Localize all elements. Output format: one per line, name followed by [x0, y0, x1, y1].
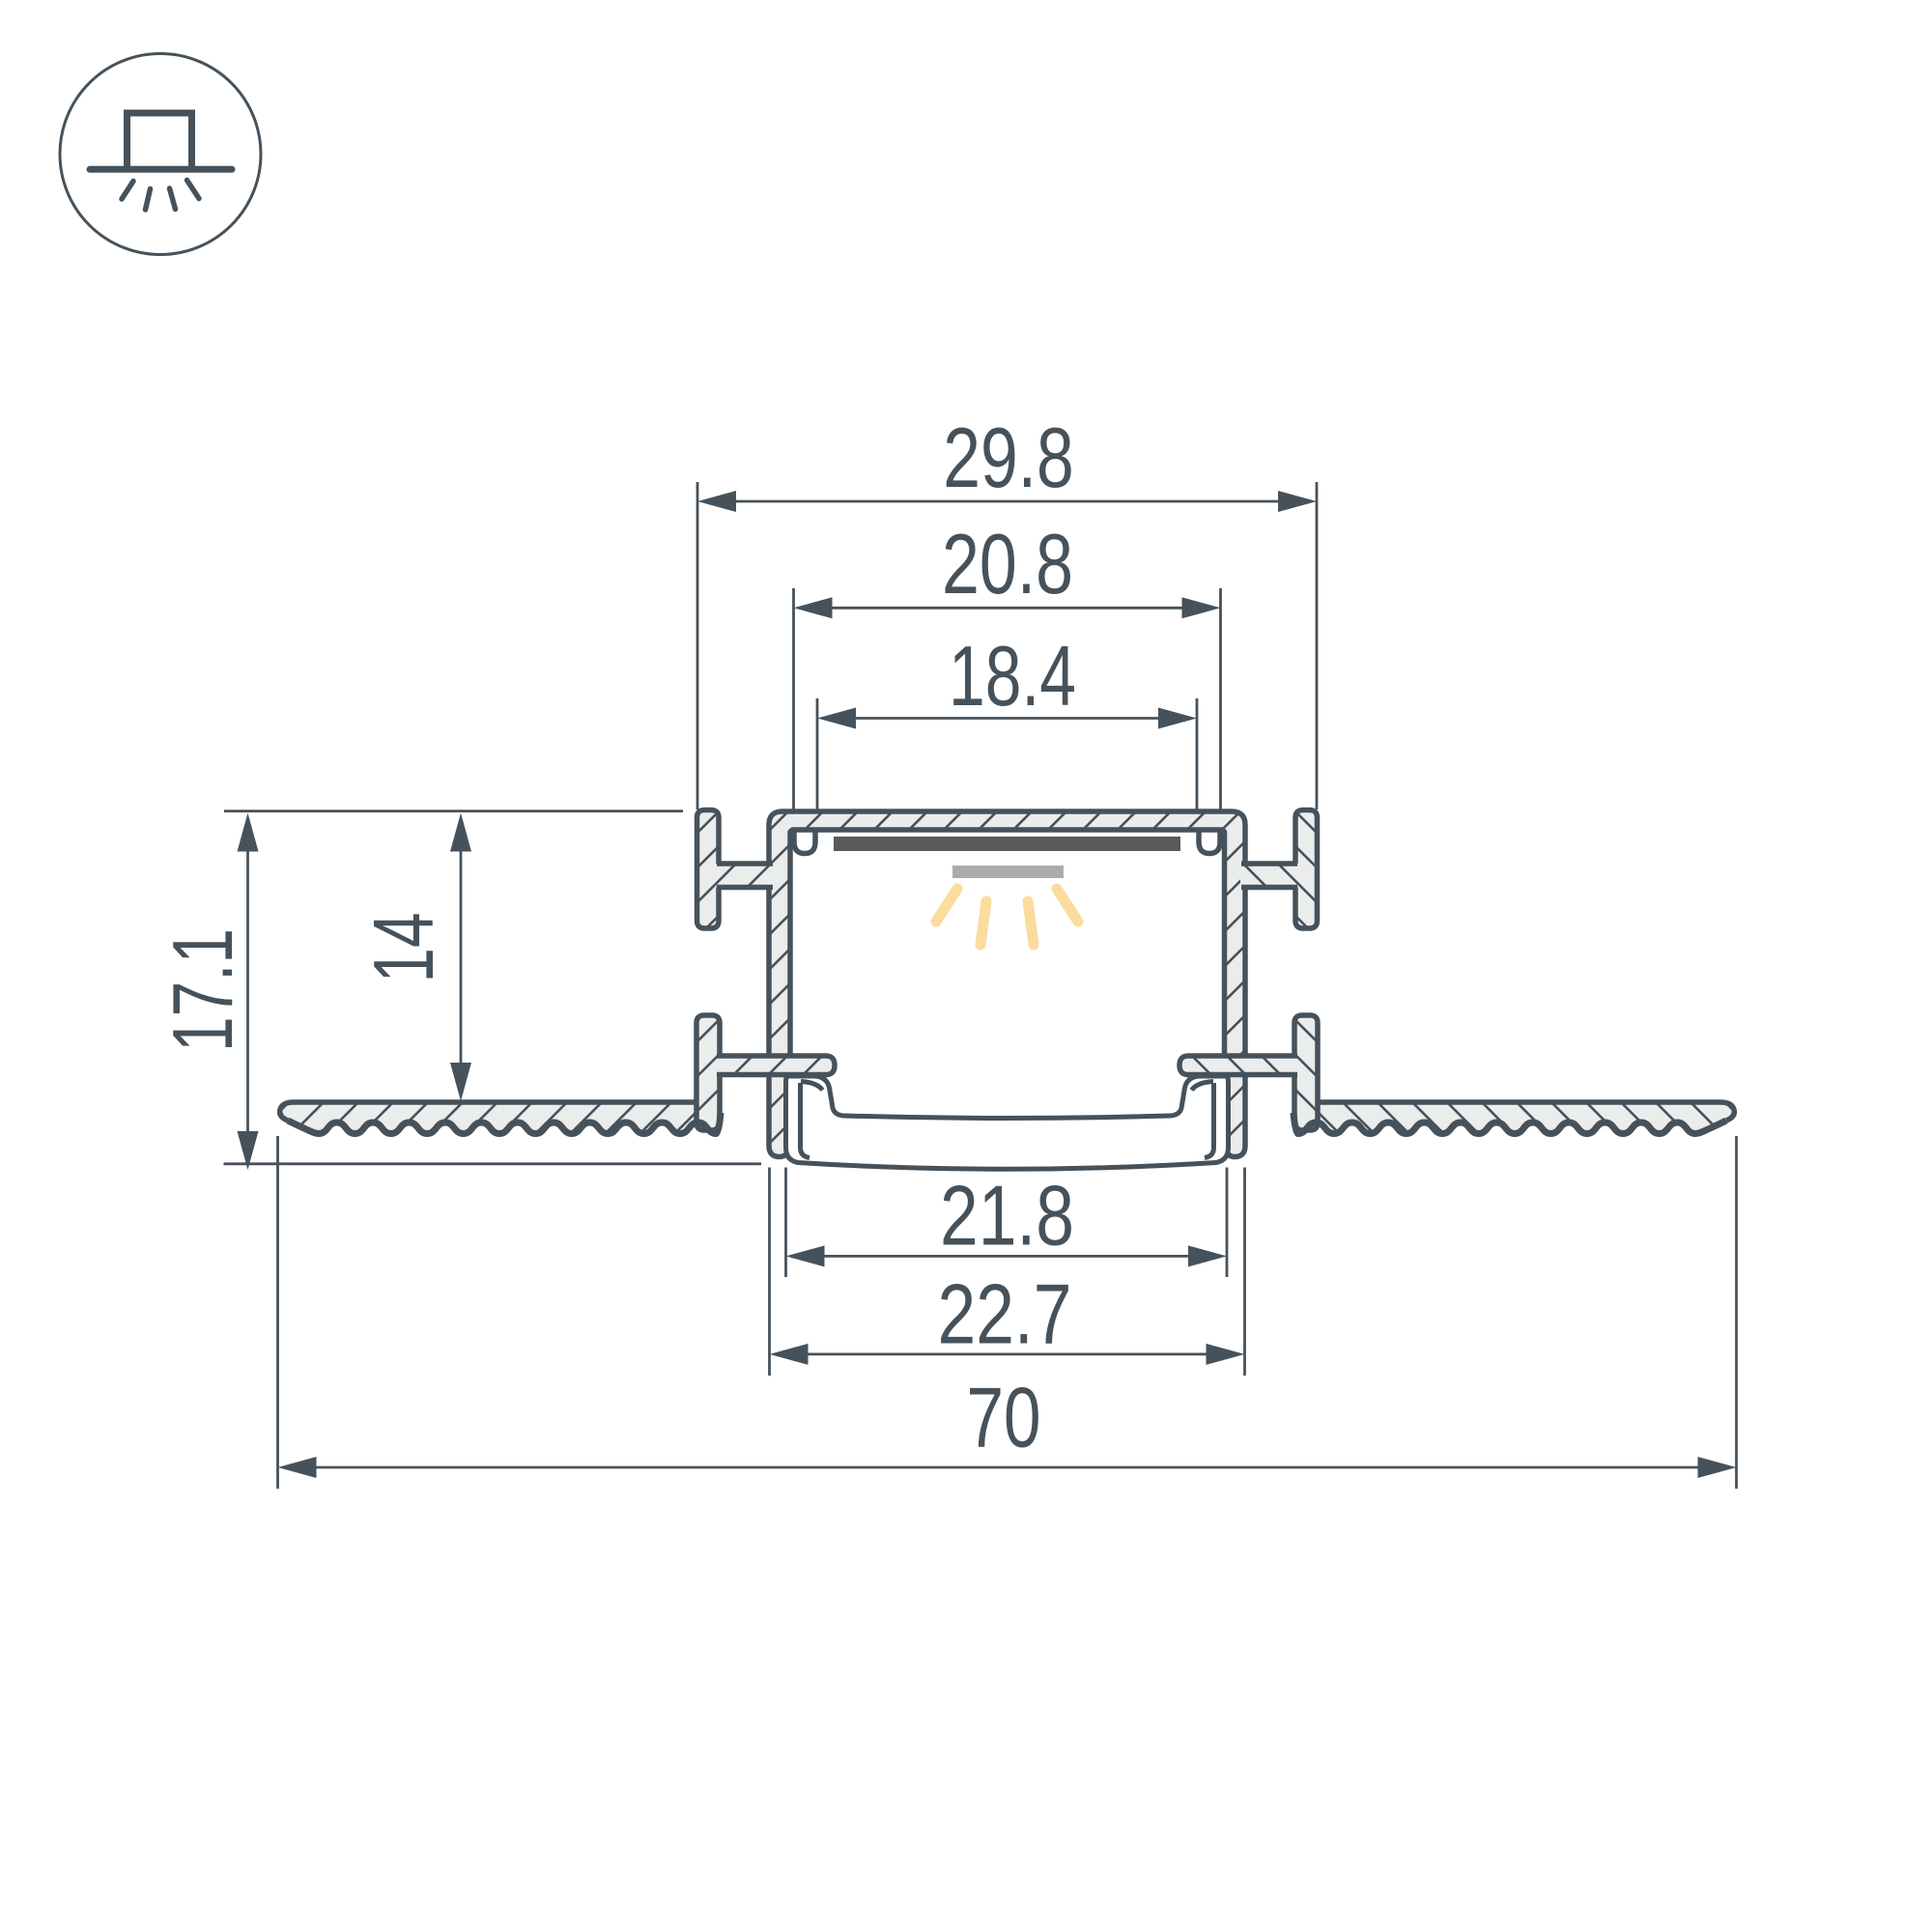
svg-text:18.4: 18.4 [949, 628, 1076, 724]
svg-text:70: 70 [967, 1369, 1041, 1464]
svg-text:20.8: 20.8 [942, 516, 1073, 611]
svg-text:22.7: 22.7 [938, 1265, 1072, 1361]
svg-text:14: 14 [355, 913, 451, 983]
svg-text:29.8: 29.8 [943, 410, 1074, 505]
svg-text:17.1: 17.1 [155, 928, 250, 1052]
svg-text:21.8: 21.8 [940, 1168, 1074, 1264]
